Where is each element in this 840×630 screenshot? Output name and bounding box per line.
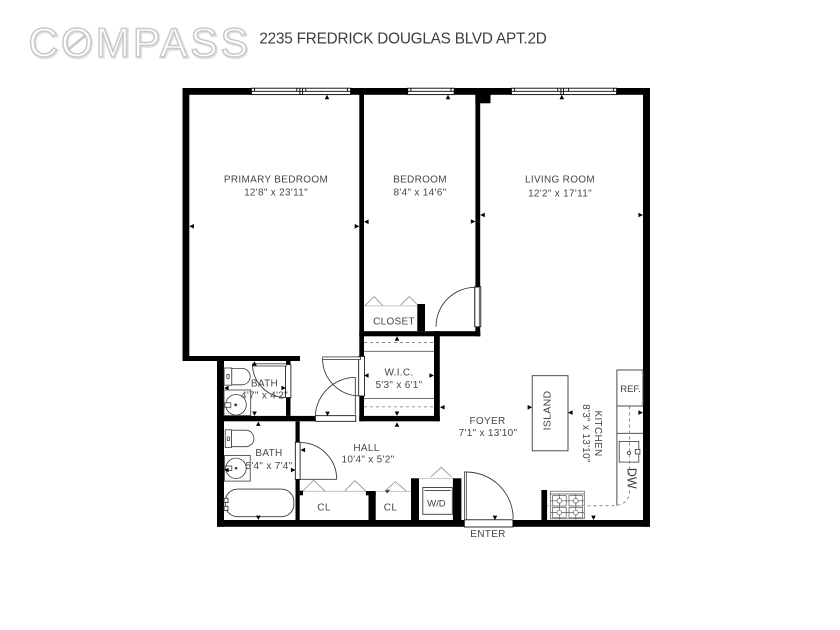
svg-text:REF.: REF. bbox=[620, 384, 641, 395]
svg-text:BATH: BATH bbox=[251, 379, 278, 390]
svg-text:2235 FREDRICK DOUGLAS BLVD APT: 2235 FREDRICK DOUGLAS BLVD APT.2D bbox=[259, 31, 546, 48]
svg-text:W.I.C.: W.I.C. bbox=[384, 368, 413, 379]
svg-text:CLOSET: CLOSET bbox=[373, 317, 415, 328]
svg-text:ISLAND: ISLAND bbox=[542, 391, 554, 431]
svg-text:W/D: W/D bbox=[427, 499, 446, 510]
svg-text:HALL: HALL bbox=[353, 443, 379, 454]
svg-text:KITCHEN: KITCHEN bbox=[592, 411, 603, 457]
svg-text:10'4" x 5'2": 10'4" x 5'2" bbox=[342, 455, 395, 466]
svg-text:BATH: BATH bbox=[255, 448, 282, 459]
svg-text:12'8" x 23'11": 12'8" x 23'11" bbox=[244, 187, 308, 198]
svg-text:8'4" x 14'6": 8'4" x 14'6" bbox=[394, 187, 447, 198]
svg-text:PRIMARY BEDROOM: PRIMARY BEDROOM bbox=[224, 174, 328, 185]
svg-text:5'3" x 6'1": 5'3" x 6'1" bbox=[375, 380, 422, 391]
svg-text:ENTER: ENTER bbox=[470, 529, 505, 540]
svg-text:BEDROOM: BEDROOM bbox=[393, 174, 447, 185]
svg-text:7'1" x 13'10": 7'1" x 13'10" bbox=[459, 428, 518, 439]
svg-text:DW: DW bbox=[625, 468, 639, 489]
svg-text:FOYER: FOYER bbox=[470, 416, 506, 427]
svg-text:5'4" x 7'4": 5'4" x 7'4" bbox=[245, 461, 292, 472]
svg-text:CL: CL bbox=[317, 503, 331, 514]
svg-text:LIVING ROOM: LIVING ROOM bbox=[525, 174, 595, 185]
svg-text:12'2" x 17'11": 12'2" x 17'11" bbox=[528, 188, 592, 199]
svg-text:8'3" x 13'10": 8'3" x 13'10" bbox=[580, 404, 591, 463]
svg-text:COMPASS: COMPASS bbox=[29, 19, 251, 65]
svg-text:CL: CL bbox=[384, 503, 398, 514]
svg-text:4'7" x 4'2": 4'7" x 4'2" bbox=[241, 391, 288, 402]
